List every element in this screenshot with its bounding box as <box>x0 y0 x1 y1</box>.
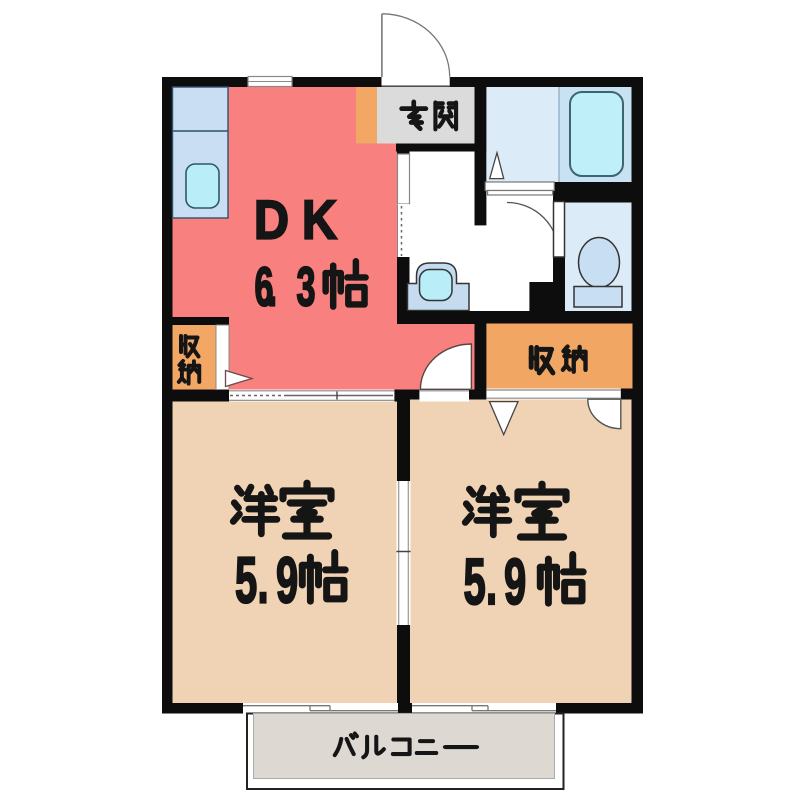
svg-text:9: 9 <box>504 546 526 618</box>
svg-text:.: . <box>258 545 269 617</box>
svg-text:9: 9 <box>276 545 298 617</box>
svg-text:3: 3 <box>297 256 316 317</box>
svg-text:.: . <box>486 546 497 618</box>
svg-text:5: 5 <box>464 546 486 618</box>
svg-text:5: 5 <box>235 545 257 617</box>
svg-text:DK: DK <box>254 189 350 251</box>
svg-text:.: . <box>268 256 277 317</box>
